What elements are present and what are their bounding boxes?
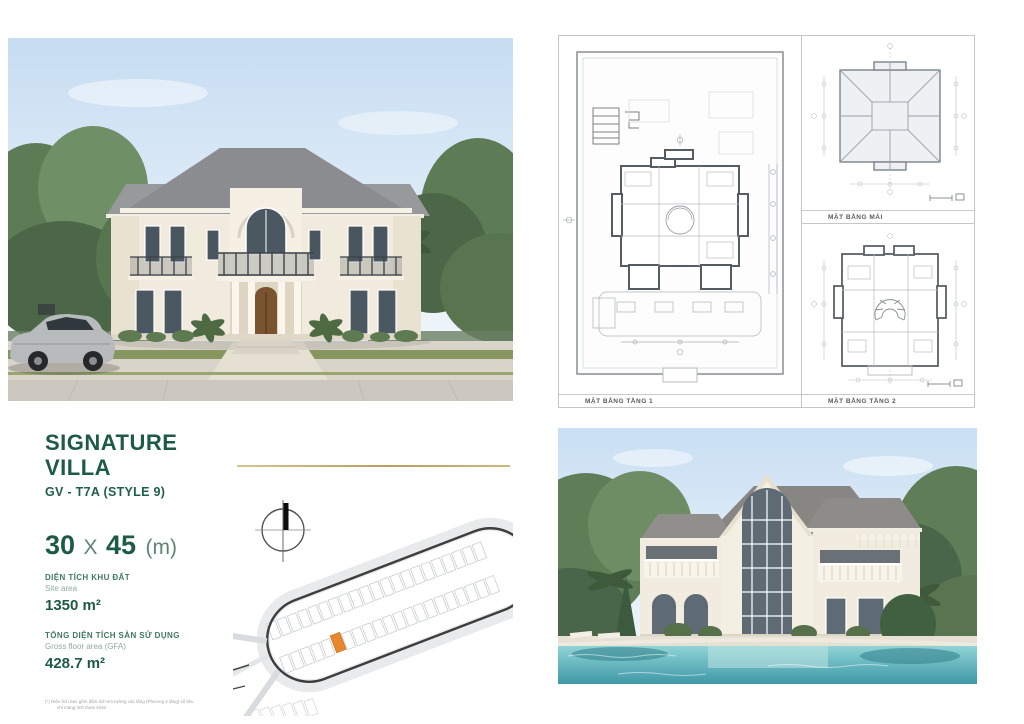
floor2-plan-drawing	[802, 224, 973, 393]
roof-plan-section: MẶT BẰNG MÁI	[802, 36, 974, 224]
dimension-separator: X	[80, 536, 102, 559]
floor2-plan-label: MẶT BẰNG TẦNG 2	[802, 394, 974, 407]
floor1-plan-label: MẶT BẰNG TẦNG 1	[559, 394, 801, 407]
gfa-label-en: Gross floor area (GFA)	[45, 642, 235, 651]
disclaimer-fine-print: (*) Diện tích bao gồm diện tích tim tườn…	[45, 699, 235, 711]
site-map-drawing	[233, 470, 513, 716]
masterplan-roads	[233, 507, 513, 716]
floor-plans-panel: MẶT BẰNG TẦNG 1	[558, 35, 975, 408]
site-location-map	[233, 470, 513, 716]
villa-title-line1: SIGNATURE	[45, 430, 235, 455]
lot-depth: 45	[106, 530, 136, 560]
disclaimer-line2: chỉ mang tính tham khảo	[45, 705, 235, 711]
villa-title-line2: VILLA	[45, 455, 235, 480]
site-area-label-vi: DIỆN TÍCH KHU ĐẤT	[45, 573, 235, 582]
site-area-value: 1350 m²	[45, 597, 235, 614]
gold-divider-line	[237, 465, 510, 467]
floor1-plan-drawing	[559, 36, 802, 394]
lot-width: 30	[45, 530, 75, 560]
roof-plan-drawing	[802, 36, 973, 210]
dimension-unit: (m)	[140, 536, 176, 559]
villa-info-block: SIGNATURE VILLA GV - T7A (STYLE 9) 30 X …	[45, 430, 235, 711]
lot-dimensions: 30 X 45 (m)	[45, 530, 235, 561]
floor2-plan-section: MẶT BẰNG TẦNG 2	[802, 224, 974, 407]
estate-sign	[38, 304, 55, 315]
villa-model-code: GV - T7A (STYLE 9)	[45, 485, 235, 499]
villa-front-photo	[8, 38, 513, 401]
roof-plan-label: MẶT BẰNG MÁI	[802, 210, 974, 223]
site-area-label-en: Site area	[45, 584, 235, 593]
compass-north-icon	[255, 500, 311, 562]
gfa-value: 428.7 m²	[45, 655, 235, 672]
brochure-page: MẶT BẰNG TẦNG 1	[0, 0, 1024, 724]
balconies	[128, 253, 404, 281]
gfa-label-vi: TỔNG DIỆN TÍCH SÀN SỬ DỤNG	[45, 631, 235, 640]
villa-rear-photo	[558, 428, 977, 684]
villa-rear-illustration	[558, 428, 977, 684]
villa-front-illustration	[8, 38, 513, 401]
floor1-plan-section: MẶT BẰNG TẦNG 1	[559, 36, 802, 407]
